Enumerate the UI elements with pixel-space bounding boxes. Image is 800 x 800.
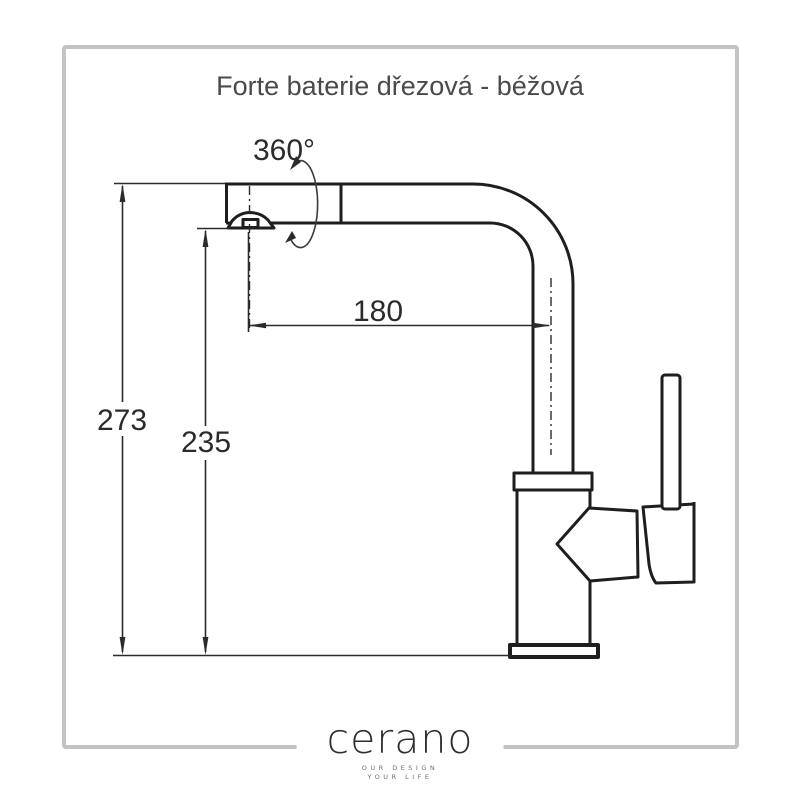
- dim-235-label: 235: [181, 426, 231, 459]
- dim-180-arrow-left: [248, 323, 266, 329]
- faucet-outline-group: [225, 184, 694, 657]
- product-drawing-page: Forte baterie dřezová - béžová: [0, 0, 800, 800]
- dimension-group: 273 235 180: [97, 184, 551, 656]
- rotation-label: 360°: [253, 134, 315, 167]
- handle-base: [643, 504, 694, 583]
- base-flange: [510, 645, 598, 657]
- brand-tagline-line2: YOUR LIFE: [327, 773, 474, 781]
- aerator-notch: [243, 220, 258, 228]
- spout-outer-contour: [225, 184, 573, 474]
- brand-logo-name: cerano: [327, 718, 474, 761]
- dim-235-arrow-up: [203, 229, 209, 247]
- faucet-technical-drawing: 273 235 180 360°: [0, 0, 800, 800]
- dim-180-arrow-right: [533, 323, 551, 329]
- rotation-annotation-group: 360°: [253, 134, 318, 248]
- brand-tagline-line1: OUR DESIGN: [327, 764, 474, 772]
- handle-lever-rod: [662, 375, 680, 509]
- rotation-arrow-bottom: [285, 231, 296, 243]
- dim-235-arrow-down: [203, 637, 209, 655]
- rotation-arc: [290, 161, 318, 248]
- body-collar: [514, 473, 592, 490]
- dim-273-label: 273: [97, 404, 147, 437]
- dim-273-arrow-up: [120, 184, 126, 202]
- dim-273-arrow-down: [120, 637, 126, 655]
- spout-inner-contour: [226, 223, 533, 474]
- dim-180-label: 180: [353, 295, 403, 328]
- brand-logo: cerano OUR DESIGN YOUR LIFE: [297, 718, 504, 789]
